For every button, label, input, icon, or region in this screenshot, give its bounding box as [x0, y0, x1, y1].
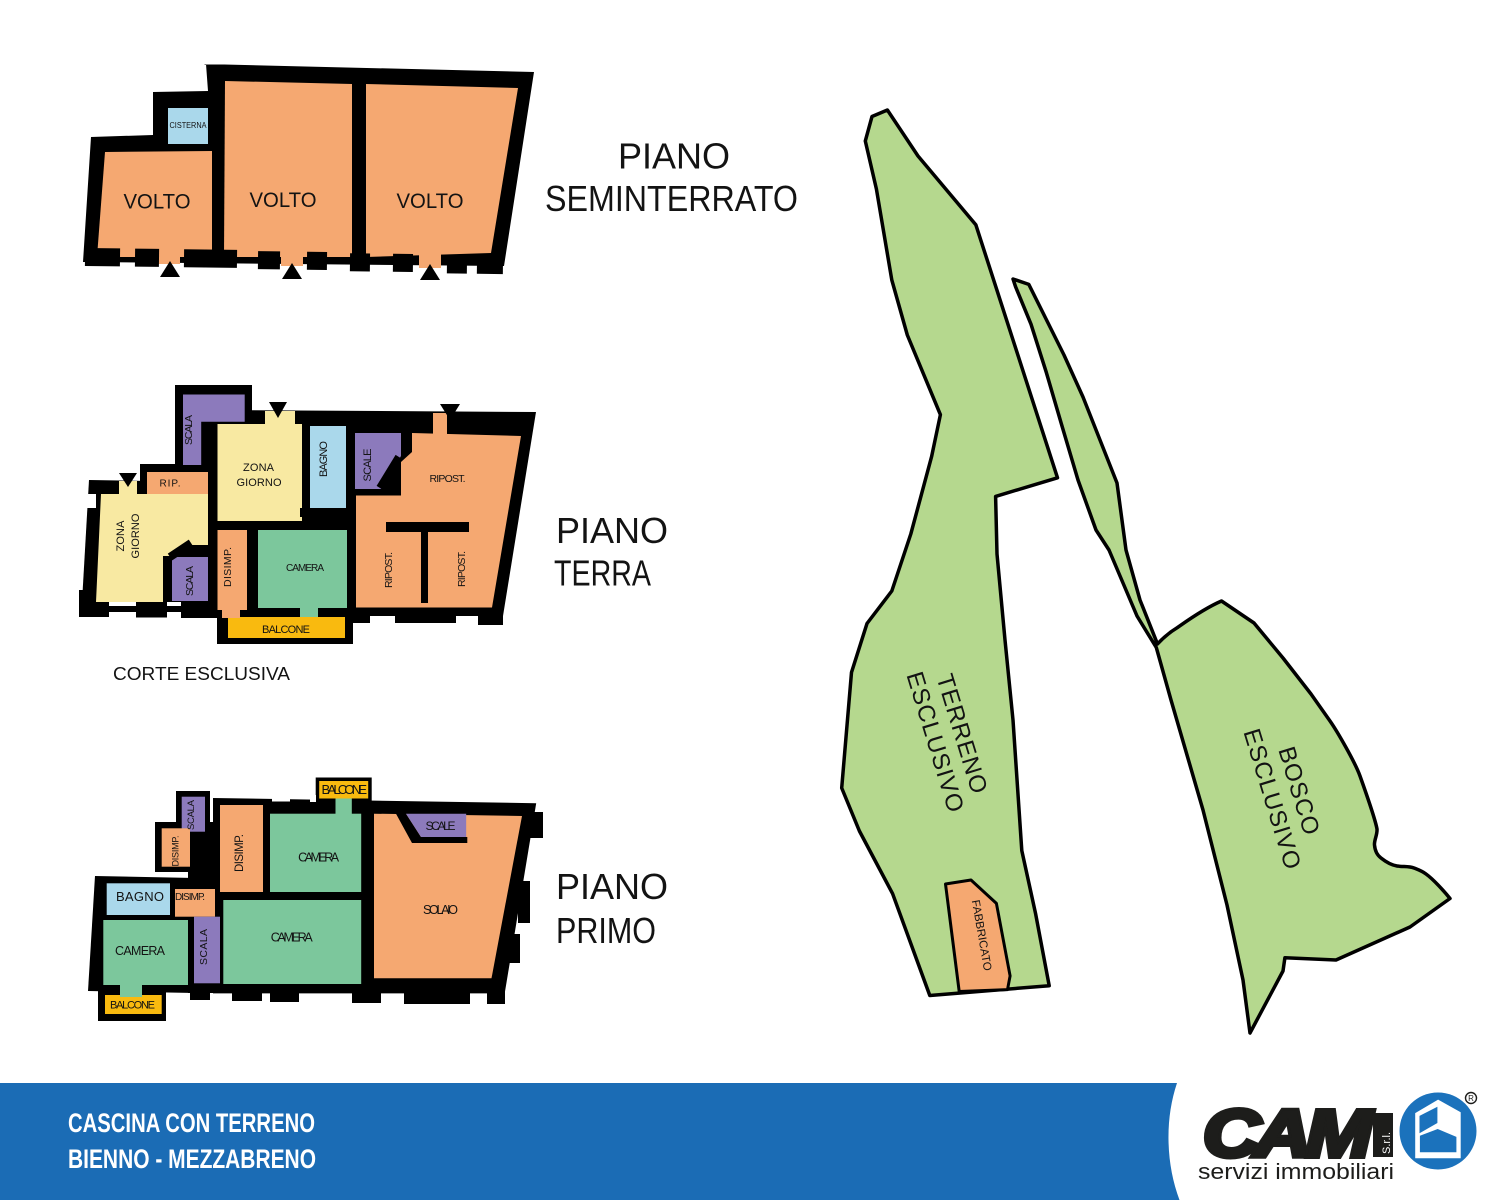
svg-text:R: R — [1468, 1094, 1474, 1103]
svg-text:VOLTO: VOLTO — [397, 190, 464, 213]
svg-text:CORTE ESCLUSIVA: CORTE ESCLUSIVA — [113, 664, 290, 684]
svg-text:BAGNO: BAGNO — [318, 441, 330, 477]
svg-text:RIPOST.: RIPOST. — [430, 473, 466, 485]
svg-text:SCALA: SCALA — [183, 415, 195, 445]
svg-text:BALCONE: BALCONE — [322, 782, 368, 797]
svg-text:VOLTO: VOLTO — [124, 191, 191, 214]
svg-text:DISIMP.: DISIMP. — [234, 834, 246, 872]
svg-text:CAMERA: CAMERA — [298, 851, 340, 865]
svg-text:BALCONE: BALCONE — [110, 999, 155, 1011]
svg-text:RIPOST.: RIPOST. — [456, 551, 468, 587]
svg-text:CISTERNA: CISTERNA — [170, 121, 208, 130]
svg-text:DISIMP.: DISIMP. — [222, 547, 234, 587]
svg-text:SCALA: SCALA — [198, 929, 210, 965]
svg-text:BIENNO - MEZZABRENO: BIENNO - MEZZABRENO — [68, 1144, 316, 1174]
svg-text:DISIMP.: DISIMP. — [175, 892, 205, 903]
svg-text:SEMINTERRATO: SEMINTERRATO — [545, 178, 798, 219]
svg-text:PRIMO: PRIMO — [556, 910, 656, 951]
svg-text:RIPOST.: RIPOST. — [383, 552, 395, 588]
svg-text:servizi immobiliari: servizi immobiliari — [1198, 1159, 1394, 1184]
svg-text:SOLAIO: SOLAIO — [423, 903, 458, 917]
svg-text:SCALA: SCALA — [186, 799, 197, 830]
svg-text:BALCONE: BALCONE — [262, 624, 310, 636]
svg-text:SCALE: SCALE — [362, 449, 374, 482]
svg-text:ZONA: ZONA — [243, 462, 275, 474]
svg-text:DISIMP.: DISIMP. — [171, 836, 181, 867]
svg-text:S.r.l.: S.r.l. — [1381, 1132, 1393, 1154]
svg-text:BAGNO: BAGNO — [116, 889, 164, 904]
svg-text:GIORNO: GIORNO — [130, 513, 142, 558]
svg-text:RIP.: RIP. — [160, 479, 181, 490]
svg-text:ZONA: ZONA — [115, 520, 127, 552]
svg-text:SCALE: SCALE — [426, 819, 456, 833]
svg-text:CASCINA CON TERRENO: CASCINA CON TERRENO — [68, 1108, 315, 1138]
svg-text:TERRA: TERRA — [554, 553, 651, 594]
svg-text:PIANO: PIANO — [618, 136, 730, 177]
svg-text:VOLTO: VOLTO — [250, 189, 317, 212]
svg-text:SCALA: SCALA — [184, 566, 196, 596]
svg-text:GIORNO: GIORNO — [237, 477, 282, 489]
svg-text:PIANO: PIANO — [556, 866, 668, 907]
svg-text:CAMERA: CAMERA — [286, 563, 324, 574]
svg-text:CAMERA: CAMERA — [115, 944, 166, 958]
svg-text:CAMERA: CAMERA — [271, 931, 314, 945]
svg-text:PIANO: PIANO — [556, 510, 668, 551]
